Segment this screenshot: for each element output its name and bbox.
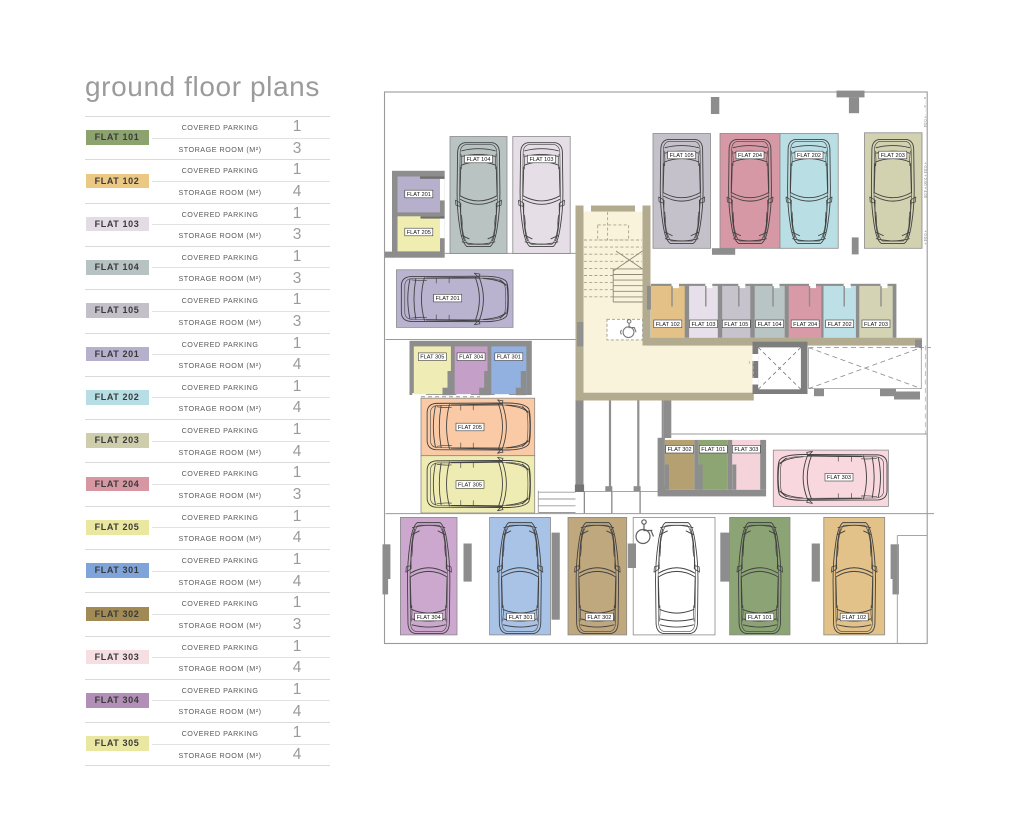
svg-text:FLAT 101: FLAT 101 bbox=[701, 447, 725, 453]
svg-text:+ 0.04 +: + 0.04 + bbox=[923, 230, 928, 245]
svg-text:+ 0.04 + 2.00 + 4.05: + 0.04 + 2.00 + 4.05 bbox=[923, 162, 928, 199]
svg-text:FLAT 303: FLAT 303 bbox=[734, 447, 758, 453]
svg-text:FLAT 205: FLAT 205 bbox=[458, 425, 482, 431]
svg-text:FLAT 303: FLAT 303 bbox=[827, 475, 851, 481]
svg-text:FLAT 105: FLAT 105 bbox=[670, 153, 694, 159]
svg-text:FLAT 103: FLAT 103 bbox=[691, 322, 715, 328]
svg-text:FLAT 105: FLAT 105 bbox=[724, 322, 748, 328]
svg-text:FLAT 101: FLAT 101 bbox=[748, 615, 772, 621]
svg-text:FLAT 302: FLAT 302 bbox=[668, 447, 692, 453]
svg-text:FLAT 301: FLAT 301 bbox=[497, 355, 521, 361]
svg-text:FLAT 305: FLAT 305 bbox=[420, 355, 444, 361]
svg-text:FLAT 204: FLAT 204 bbox=[738, 153, 762, 159]
svg-text:o · · o · · · + 0.04: o · · o · · · + 0.04 bbox=[923, 97, 928, 128]
svg-text:FLAT 103: FLAT 103 bbox=[529, 157, 553, 163]
svg-text:FLAT 102: FLAT 102 bbox=[656, 322, 680, 328]
svg-text:FLAT 304: FLAT 304 bbox=[417, 615, 441, 621]
svg-text:FLAT 301: FLAT 301 bbox=[509, 615, 533, 621]
svg-text:FLAT 205: FLAT 205 bbox=[407, 230, 431, 236]
svg-text:1: 1 bbox=[749, 361, 751, 365]
svg-text:FLAT 102: FLAT 102 bbox=[842, 615, 866, 621]
svg-text:FLAT 202: FLAT 202 bbox=[828, 322, 852, 328]
svg-text:FLAT 201: FLAT 201 bbox=[407, 192, 431, 198]
svg-text:FLAT 201: FLAT 201 bbox=[436, 296, 460, 302]
svg-text:FLAT 302: FLAT 302 bbox=[587, 615, 611, 621]
svg-text:FLAT 304: FLAT 304 bbox=[459, 355, 483, 361]
svg-text:FLAT 202: FLAT 202 bbox=[797, 153, 821, 159]
svg-text:FLAT 203: FLAT 203 bbox=[881, 153, 905, 159]
svg-text:FLAT 305: FLAT 305 bbox=[458, 483, 482, 489]
svg-text:FLAT 104: FLAT 104 bbox=[758, 322, 782, 328]
svg-text:FLAT 204: FLAT 204 bbox=[793, 322, 817, 328]
svg-text:FLAT 203: FLAT 203 bbox=[864, 322, 888, 328]
svg-text:FLAT 104: FLAT 104 bbox=[466, 157, 490, 163]
